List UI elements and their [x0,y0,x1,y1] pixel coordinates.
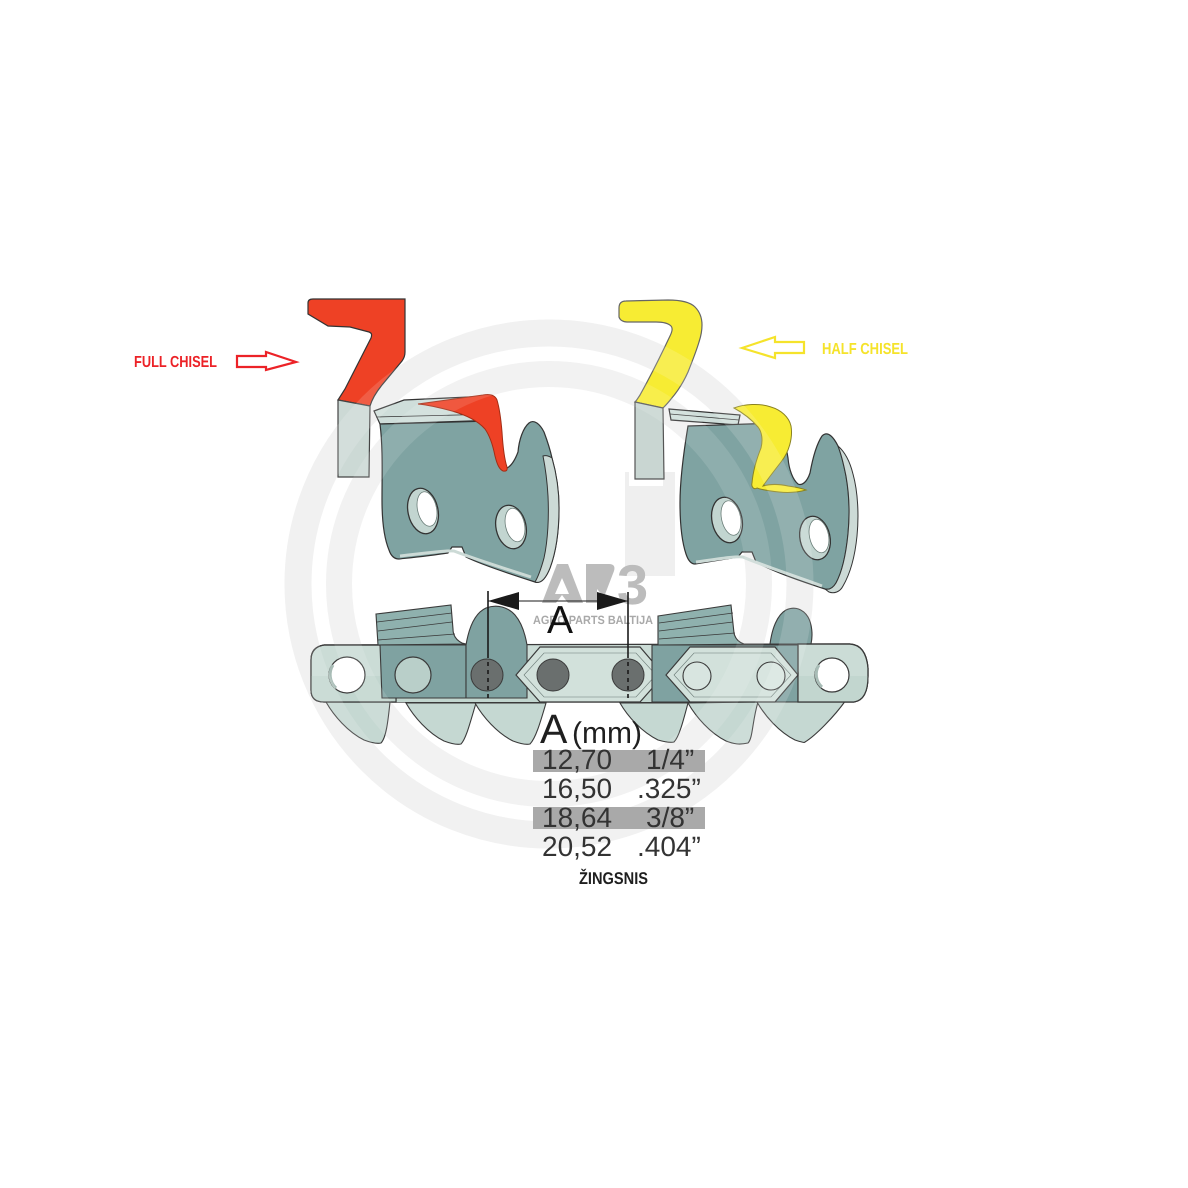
svg-text:20,52: 20,52 [542,831,612,862]
svg-text:FULL CHISEL: FULL CHISEL [134,354,217,371]
svg-text:.404”: .404” [637,831,701,862]
svg-text:12,70: 12,70 [542,744,612,775]
svg-text:3: 3 [617,553,648,616]
svg-text:ŽINGSNIS: ŽINGSNIS [579,868,648,888]
svg-text:16,50: 16,50 [542,773,612,804]
svg-text:.325”: .325” [637,773,701,804]
svg-text:A: A [547,599,573,642]
svg-text:3/8”: 3/8” [646,802,694,833]
svg-text:18,64: 18,64 [542,802,612,833]
svg-text:1/4”: 1/4” [646,744,694,775]
svg-text:HALF CHISEL: HALF CHISEL [822,341,908,358]
